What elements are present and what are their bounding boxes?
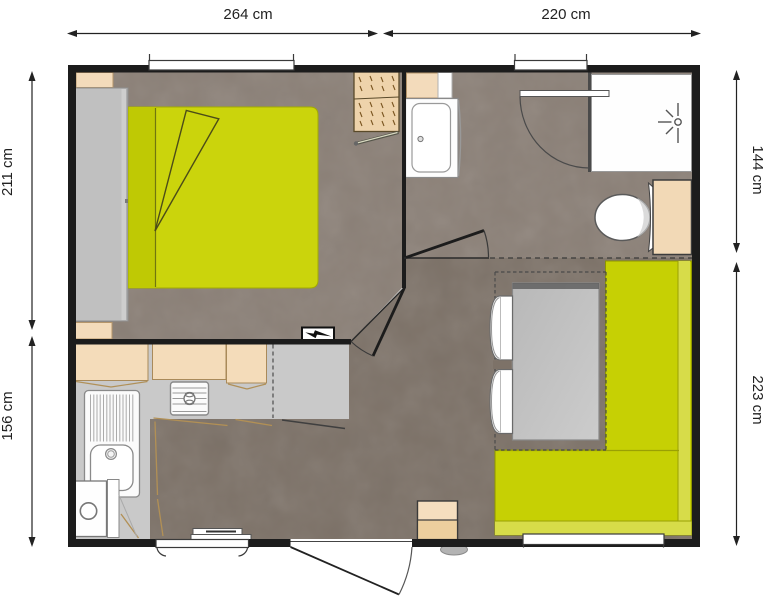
svg-text:211 cm: 211 cm bbox=[0, 148, 16, 196]
svg-text:223 cm: 223 cm bbox=[749, 375, 766, 424]
svg-text:156 cm: 156 cm bbox=[0, 391, 16, 440]
svg-text:264 cm: 264 cm bbox=[223, 6, 272, 23]
svg-text:144 cm: 144 cm bbox=[749, 145, 766, 194]
svg-text:220 cm: 220 cm bbox=[541, 6, 590, 23]
